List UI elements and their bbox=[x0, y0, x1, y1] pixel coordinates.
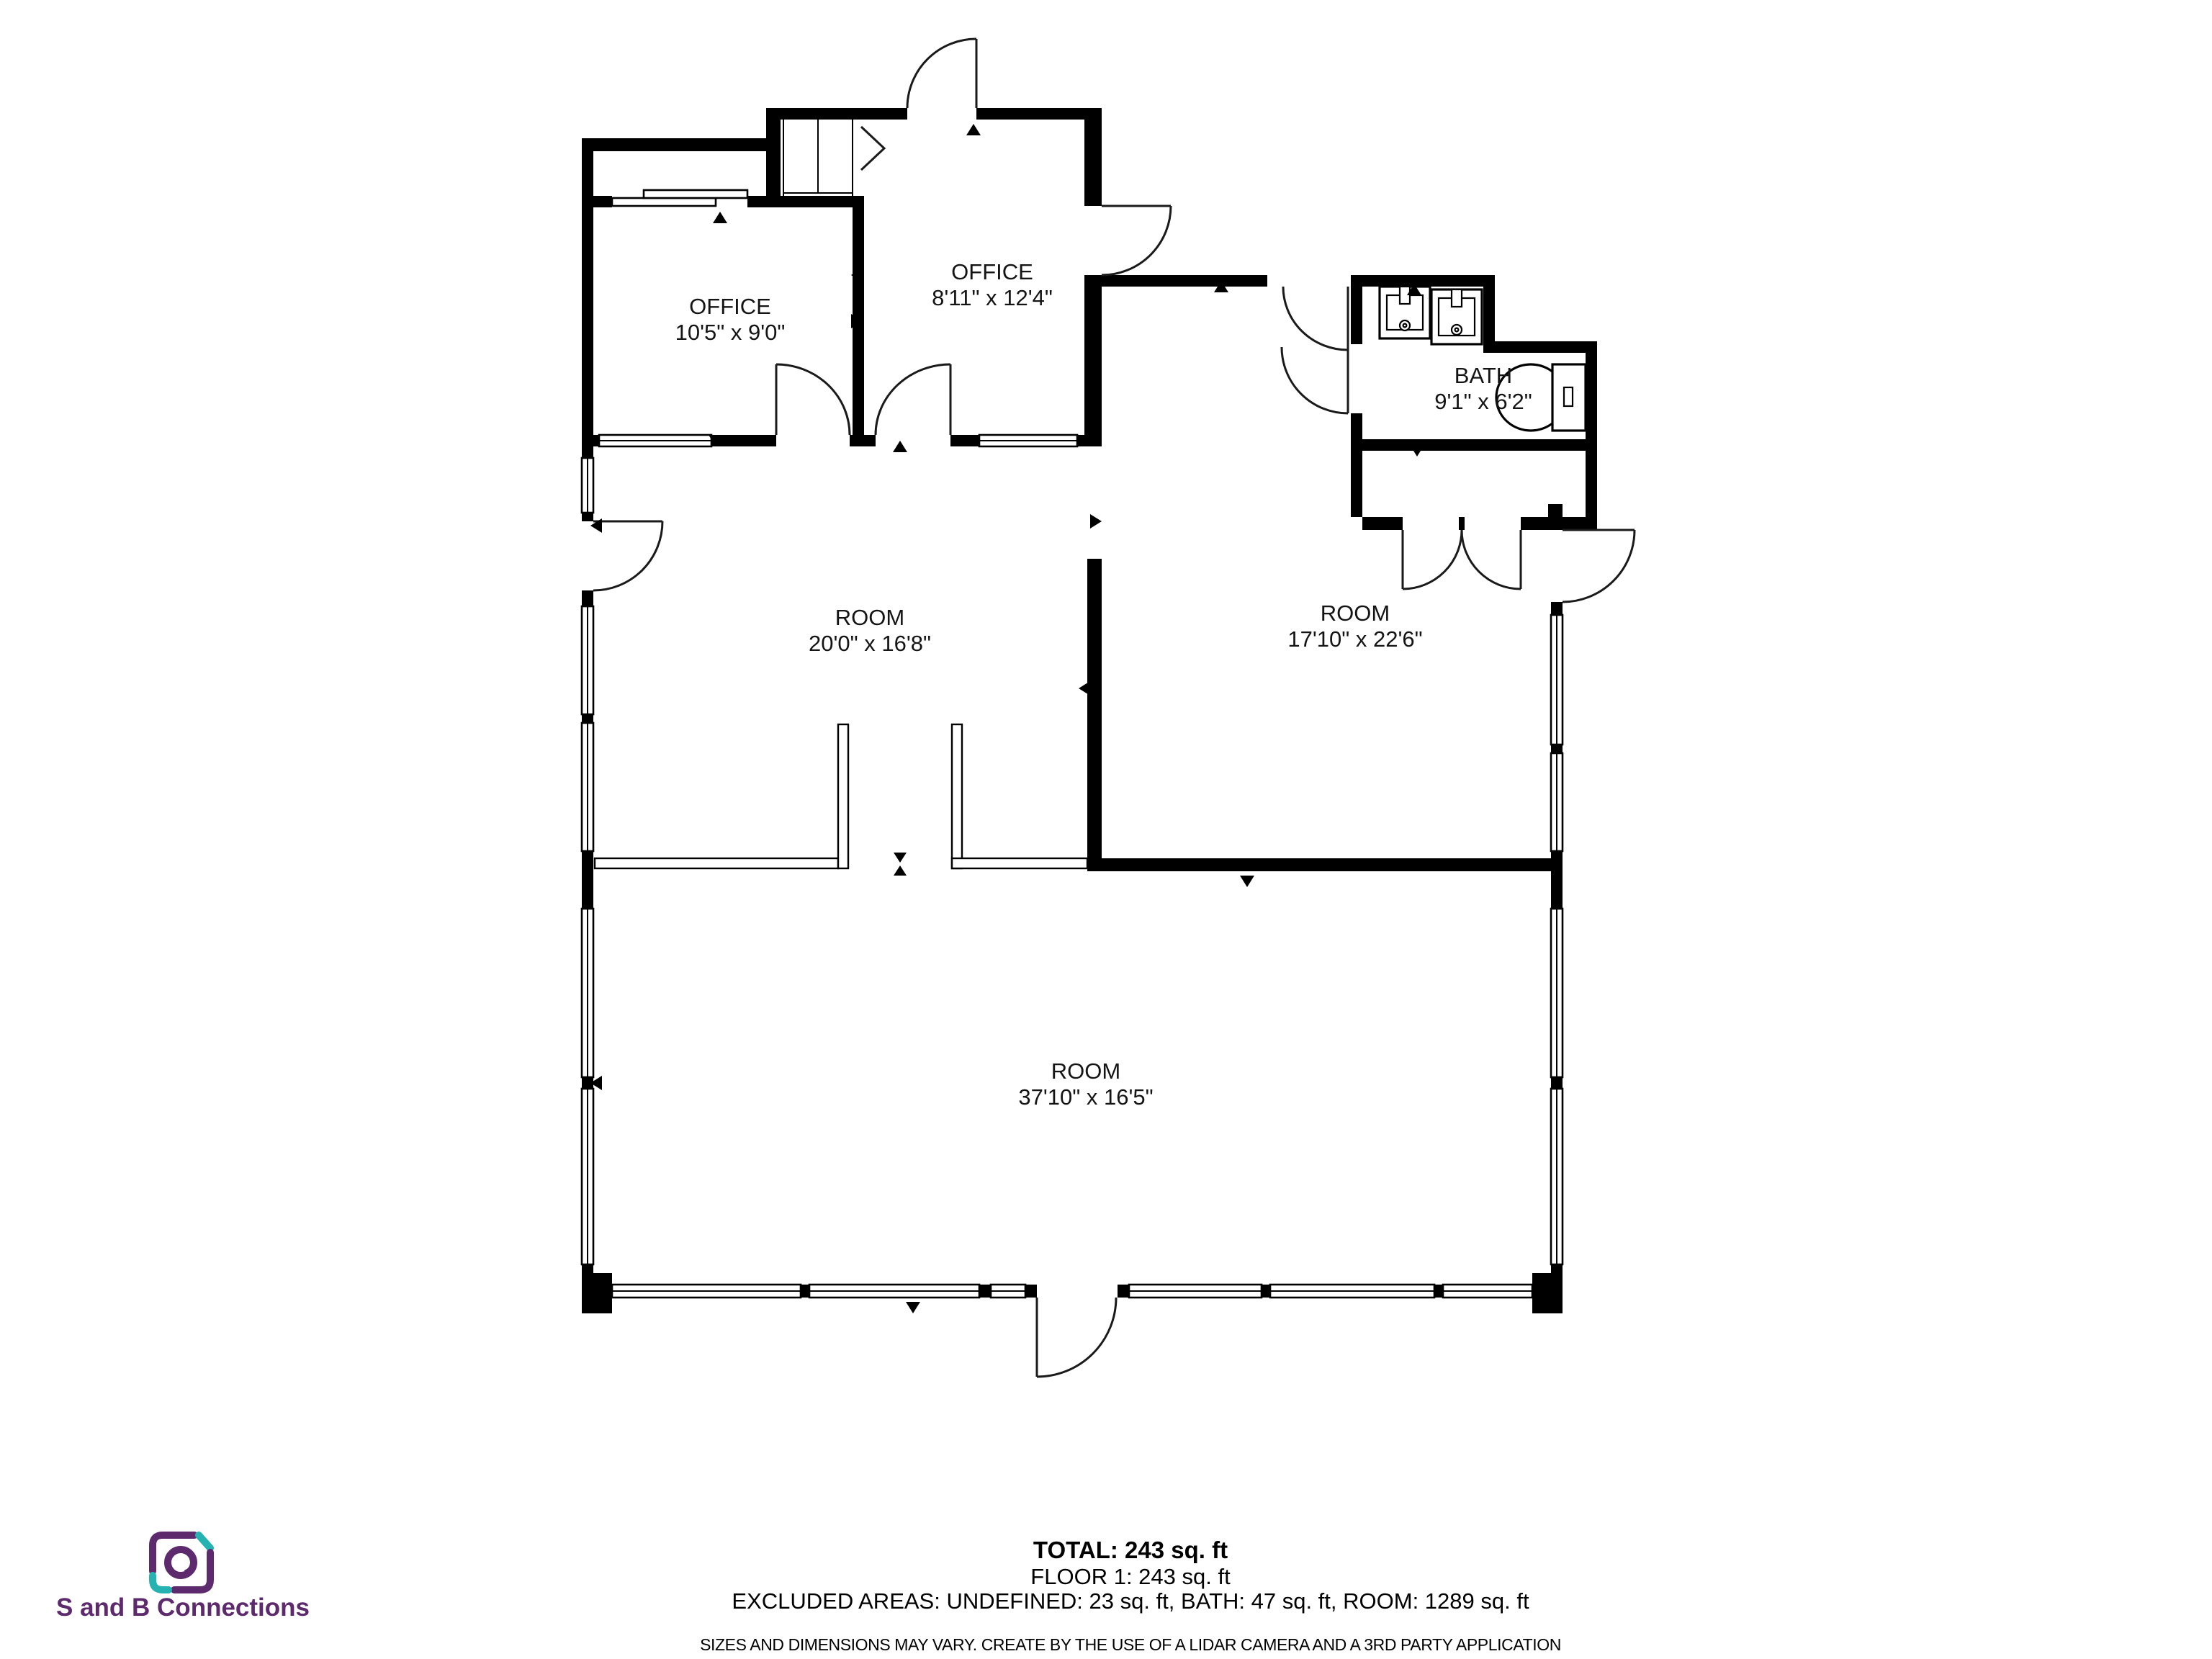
camera-lens bbox=[168, 1550, 194, 1575]
room-bottom-dims: 37'10" x 16'5" bbox=[1018, 1084, 1153, 1110]
room-middle-dims: 20'0" x 16'8" bbox=[809, 631, 931, 656]
room-right-dims: 17'10" x 22'6" bbox=[1287, 626, 1422, 652]
office-left-name: OFFICE bbox=[689, 294, 771, 319]
room-bottom-name: ROOM bbox=[1051, 1058, 1120, 1084]
summary-floor: FLOOR 1: 243 sq. ft bbox=[1030, 1564, 1231, 1589]
page-background bbox=[0, 0, 2212, 1659]
bath-dims: 9'1" x 6'2" bbox=[1434, 389, 1532, 414]
office-left-dims: 10'5" x 9'0" bbox=[675, 320, 786, 345]
room-middle-name: ROOM bbox=[835, 605, 904, 630]
sink-left bbox=[1380, 287, 1430, 338]
bath-name: BATH bbox=[1455, 363, 1512, 388]
room-right-name: ROOM bbox=[1321, 601, 1390, 626]
summary-total: TOTAL: 243 sq. ft bbox=[1033, 1537, 1228, 1563]
summary-disclaimer: SIZES AND DIMENSIONS MAY VARY. CREATE BY… bbox=[700, 1635, 1561, 1654]
sink-right bbox=[1431, 289, 1482, 344]
office-top-dims: 8'11" x 12'4" bbox=[932, 285, 1053, 310]
company-name: S and B Connections bbox=[56, 1593, 310, 1622]
floorplan-canvas: OFFICE 10'5" x 9'0" OFFICE 8'11" x 12'4"… bbox=[0, 0, 2212, 1659]
office-top-name: OFFICE bbox=[951, 259, 1033, 284]
summary-excluded: EXCLUDED AREAS: UNDEFINED: 23 sq. ft, BA… bbox=[732, 1588, 1529, 1614]
